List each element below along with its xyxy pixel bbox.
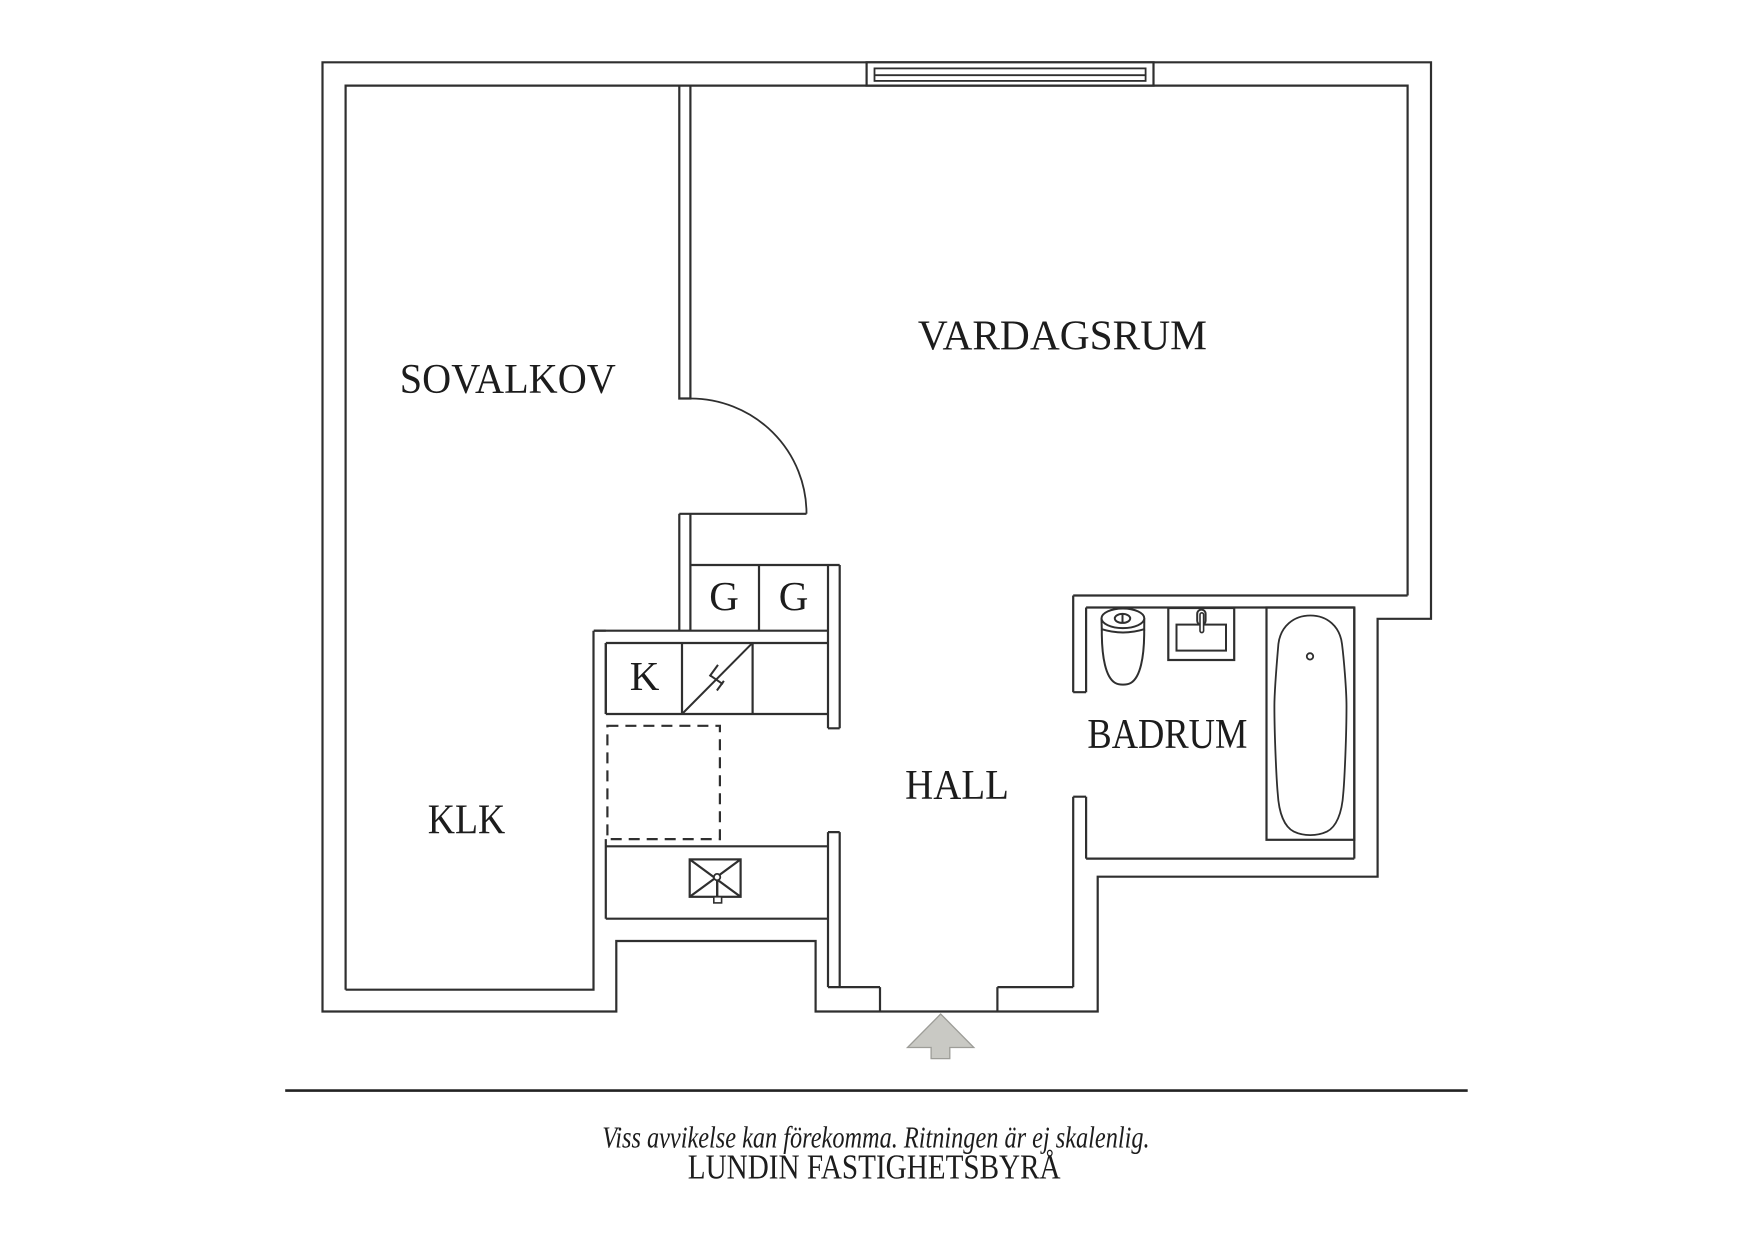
svg-text:BADRUM: BADRUM [1087,712,1247,758]
svg-text:KLK: KLK [428,797,506,843]
svg-text:HALL: HALL [905,763,1009,809]
svg-text:G: G [709,573,739,619]
svg-text:LUNDIN FASTIGHETSBYRÅ: LUNDIN FASTIGHETSBYRÅ [688,1147,1061,1186]
svg-text:K: K [630,653,660,699]
svg-text:VARDAGSRUM: VARDAGSRUM [918,313,1207,359]
svg-text:G: G [779,573,809,619]
svg-text:SOVALKOV: SOVALKOV [400,357,616,403]
